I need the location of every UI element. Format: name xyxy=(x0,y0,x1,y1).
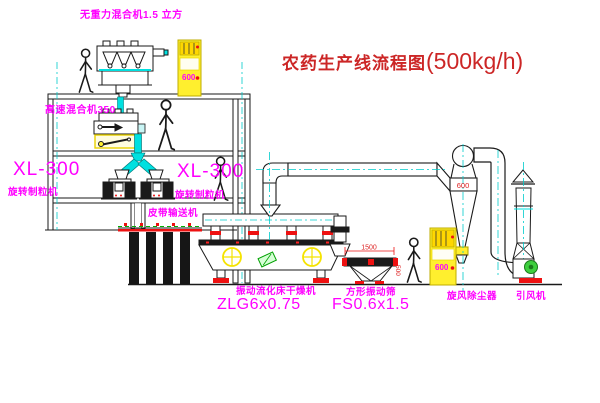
label-granulator-right-name: 旋转制粒机 xyxy=(175,191,225,201)
label-cyclone: 旋风除尘器 xyxy=(447,292,497,302)
label-gravity-mixer: 无重力混合机1.5 立方 xyxy=(80,11,183,21)
cabinet-1-text: 600 xyxy=(182,74,195,82)
fluid-bed-dryer xyxy=(199,214,343,283)
cyclone-diameter-text: 600 xyxy=(457,181,470,190)
label-fan: 引风机 xyxy=(516,292,546,302)
pesticide-line-flow-drawing: 600 xyxy=(0,0,600,403)
person-ground xyxy=(407,238,421,282)
cabinet-2-text: 600 xyxy=(435,264,448,272)
sieve-height-text: 500 xyxy=(394,265,401,276)
label-granulator-right-model: XL-300 xyxy=(177,162,244,181)
label-granulator-left-name: 旋转制粒机 xyxy=(8,188,58,198)
gravity-free-mixer xyxy=(97,41,168,97)
label-dryer-model: ZLG6x0.75 xyxy=(217,297,301,313)
control-cabinet-1 xyxy=(178,40,201,96)
granulator-left xyxy=(101,170,137,199)
label-granulator-left-model: XL-300 xyxy=(13,160,80,179)
sieve-length-text: 1500 xyxy=(361,245,377,252)
belt-conveyor xyxy=(118,223,202,284)
label-high-speed-mixer: 高速混合机350 xyxy=(45,106,116,116)
drawing-title: 农药生产线流程图(500kg/h) xyxy=(282,48,523,75)
granulator-right xyxy=(139,170,175,199)
label-belt-conveyor: 皮带输送机 xyxy=(148,209,198,219)
label-sieve-model: FS0.6x1.5 xyxy=(332,297,409,313)
square-vibrating-sieve xyxy=(342,247,398,284)
control-cabinet-2 xyxy=(430,228,456,285)
person-top-floor xyxy=(79,49,92,92)
drawing-title-capacity: (500kg/h) xyxy=(426,48,523,74)
exhaust-duct xyxy=(256,152,450,243)
drawing-title-text: 农药生产线流程图 xyxy=(282,54,426,73)
induced-draft-fan xyxy=(513,259,542,283)
person-second-floor xyxy=(159,100,174,149)
